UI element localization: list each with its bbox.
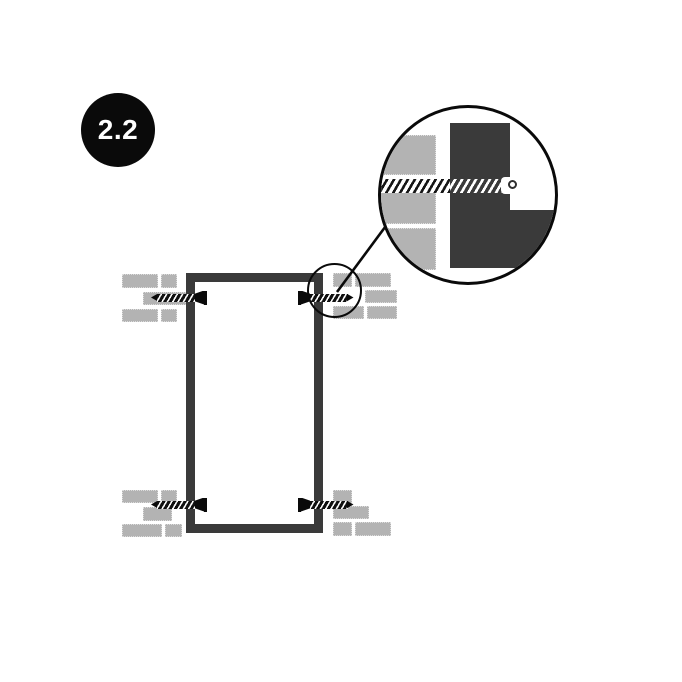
screw-head-face xyxy=(204,291,208,305)
brick xyxy=(355,522,391,536)
brick xyxy=(122,274,158,288)
detail-brick xyxy=(381,135,436,175)
screw-head-face xyxy=(298,498,302,512)
screw-top-left-icon xyxy=(151,291,207,305)
step-number: 2.2 xyxy=(98,114,138,146)
diagram-canvas: 2.2 xyxy=(0,0,682,682)
brick xyxy=(161,309,177,323)
screw-tip xyxy=(347,501,354,509)
screw-head-face xyxy=(204,498,208,512)
detail-brick xyxy=(381,228,436,270)
brick xyxy=(122,524,162,538)
screw-shank xyxy=(310,501,348,509)
screw-bottom-left-icon xyxy=(151,498,207,512)
brick xyxy=(165,524,182,538)
brick xyxy=(122,309,158,323)
window-frame xyxy=(186,273,323,533)
screw-shank xyxy=(157,294,195,302)
callout-source-circle xyxy=(307,263,362,318)
detail-screw-shank-outer xyxy=(381,179,450,193)
detail-screw-head-circle-icon xyxy=(508,180,517,189)
brick xyxy=(161,274,177,288)
screw-shank xyxy=(157,501,195,509)
detail-frame-profile xyxy=(450,123,510,268)
step-badge: 2.2 xyxy=(81,93,155,167)
detail-content xyxy=(381,108,555,282)
brick xyxy=(367,306,398,320)
brick xyxy=(333,522,352,536)
detail-magnifier-circle xyxy=(378,105,558,285)
detail-screw-shank-inner xyxy=(450,179,502,193)
screw-head-face xyxy=(298,291,302,305)
screw-bottom-right-icon xyxy=(298,498,354,512)
brick xyxy=(365,290,397,304)
detail-frame-profile-step xyxy=(510,210,555,269)
